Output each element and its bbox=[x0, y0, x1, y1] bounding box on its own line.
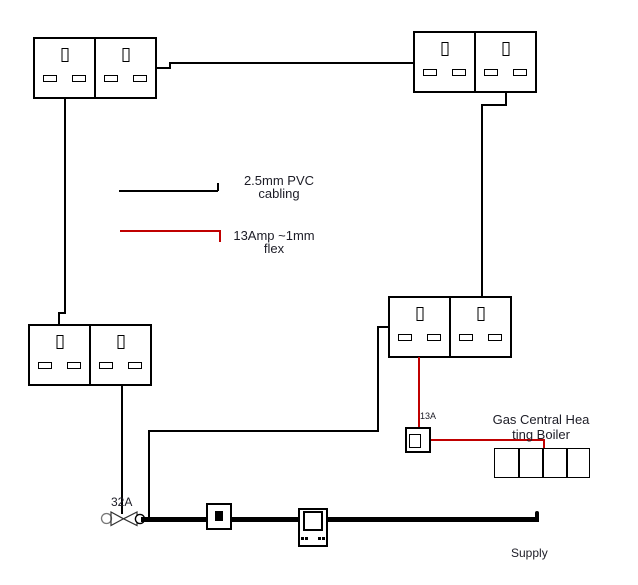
meter-terminal-dot bbox=[322, 537, 325, 540]
neutral-pin-slot bbox=[133, 75, 147, 82]
earth-pin-slot bbox=[477, 307, 484, 321]
socket-outlet bbox=[30, 326, 89, 384]
earth-pin-slot bbox=[441, 42, 448, 56]
neutral-pin-slot bbox=[513, 69, 527, 76]
earth-pin-slot bbox=[61, 48, 68, 62]
socket-outlet bbox=[94, 39, 155, 97]
live-pin-slot bbox=[38, 362, 52, 369]
breaker-rating-label: 32A bbox=[111, 495, 132, 509]
meter-terminal-dot bbox=[305, 537, 308, 540]
legend-cabling-label: 2.5mm PVC cabling bbox=[224, 174, 334, 200]
double-socket-top-right bbox=[413, 31, 537, 93]
fused-spur-unit bbox=[405, 427, 431, 453]
boiler-section-divider bbox=[518, 449, 520, 477]
double-socket-middle-right bbox=[388, 296, 512, 358]
live-pin-slot bbox=[398, 334, 412, 341]
ring-cable-segment bbox=[58, 312, 60, 324]
fuse-holder bbox=[409, 434, 421, 448]
socket-outlet bbox=[449, 298, 510, 356]
neutral-pin-slot bbox=[72, 75, 86, 82]
legend-cabling-line-tick bbox=[217, 183, 219, 191]
supply-cable-end-hook bbox=[535, 511, 539, 522]
wiring-diagram: 2.5mm PVC cabling 13Amp ~1mm flex 13A Ga… bbox=[0, 0, 638, 585]
legend-cabling-line-sample bbox=[119, 190, 218, 192]
neutral-pin-slot bbox=[128, 362, 142, 369]
live-pin-slot bbox=[484, 69, 498, 76]
earth-pin-slot bbox=[502, 42, 509, 56]
socket-outlet bbox=[415, 33, 474, 91]
legend-flex-label: 13Amp ~1mm flex bbox=[219, 229, 329, 255]
live-pin-slot bbox=[43, 75, 57, 82]
boiler-label-line1: Gas Central Hea bbox=[493, 412, 590, 427]
main-switch-box bbox=[206, 503, 232, 530]
supply-main-cable bbox=[327, 517, 537, 522]
socket-outlet bbox=[474, 33, 535, 91]
live-pin-slot bbox=[99, 362, 113, 369]
supply-main-cable bbox=[230, 517, 298, 522]
supply-label: Supply bbox=[511, 546, 548, 560]
legend-flex-label-line2: flex bbox=[264, 241, 284, 256]
spur-fuse-rating-label: 13A bbox=[420, 411, 436, 421]
ring-cable-segment bbox=[148, 430, 150, 518]
ring-cable-segment bbox=[481, 104, 507, 106]
supply-main-cable bbox=[141, 517, 206, 522]
earth-pin-slot bbox=[416, 307, 423, 321]
neutral-pin-slot bbox=[427, 334, 441, 341]
socket-outlet bbox=[35, 39, 94, 97]
breaker-bowtie-icon bbox=[111, 512, 124, 526]
ring-cable-segment bbox=[481, 104, 483, 296]
earth-pin-slot bbox=[122, 48, 129, 62]
meter-terminal-dot bbox=[318, 537, 321, 540]
ring-cable-segment bbox=[377, 326, 379, 432]
neutral-pin-slot bbox=[452, 69, 466, 76]
switch-knob-icon bbox=[215, 511, 223, 521]
ring-cable-segment bbox=[148, 430, 378, 432]
breaker-circle-icon bbox=[102, 514, 112, 524]
legend-cabling-label-line2: cabling bbox=[258, 186, 299, 201]
neutral-pin-slot bbox=[488, 334, 502, 341]
ring-cable-segment bbox=[64, 98, 66, 313]
legend-flex-line-sample bbox=[120, 230, 220, 232]
electricity-meter bbox=[298, 508, 328, 547]
boiler-section-divider bbox=[542, 449, 544, 477]
meter-terminal-dot bbox=[301, 537, 304, 540]
live-pin-slot bbox=[423, 69, 437, 76]
double-socket-bottom-left bbox=[28, 324, 152, 386]
live-pin-slot bbox=[104, 75, 118, 82]
ring-cable-segment bbox=[377, 326, 389, 328]
earth-pin-slot bbox=[56, 335, 63, 349]
neutral-pin-slot bbox=[67, 362, 81, 369]
boiler-label-line2: ting Boiler bbox=[512, 427, 570, 442]
boiler-label: Gas Central Hea ting Boiler bbox=[486, 412, 596, 442]
meter-display bbox=[303, 511, 323, 531]
double-socket-top-left bbox=[33, 37, 157, 99]
socket-outlet bbox=[390, 298, 449, 356]
boiler-section-divider bbox=[566, 449, 568, 477]
earth-pin-slot bbox=[117, 335, 124, 349]
live-pin-slot bbox=[459, 334, 473, 341]
socket-outlet bbox=[89, 326, 150, 384]
boiler-radiator-symbol bbox=[494, 448, 590, 478]
ring-cable-segment bbox=[169, 62, 413, 64]
